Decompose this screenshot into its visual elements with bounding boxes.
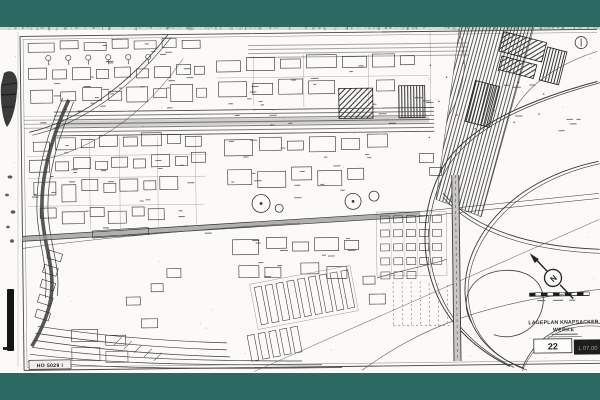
site-plan-drawing: N LAGEPLAN KNAPSACKER WERKE 22	[0, 27, 600, 373]
plate-code: L 07.00	[578, 346, 597, 352]
stamp-text: HO 5029 i	[37, 363, 64, 369]
archive-stamp: HO 5029 i	[29, 360, 71, 370]
bottom-teal-bar	[0, 373, 600, 400]
top-teal-bar	[0, 0, 600, 27]
sheet-number: 22	[548, 341, 558, 351]
screenshot-root: N LAGEPLAN KNAPSACKER WERKE 22	[0, 0, 600, 400]
black-bar-artifact	[7, 289, 14, 351]
scanned-plan-page: N LAGEPLAN KNAPSACKER WERKE 22	[0, 27, 600, 373]
title-line-1: LAGEPLAN KNAPSACKER	[528, 319, 598, 326]
title-line-2: WERKE	[553, 327, 575, 333]
